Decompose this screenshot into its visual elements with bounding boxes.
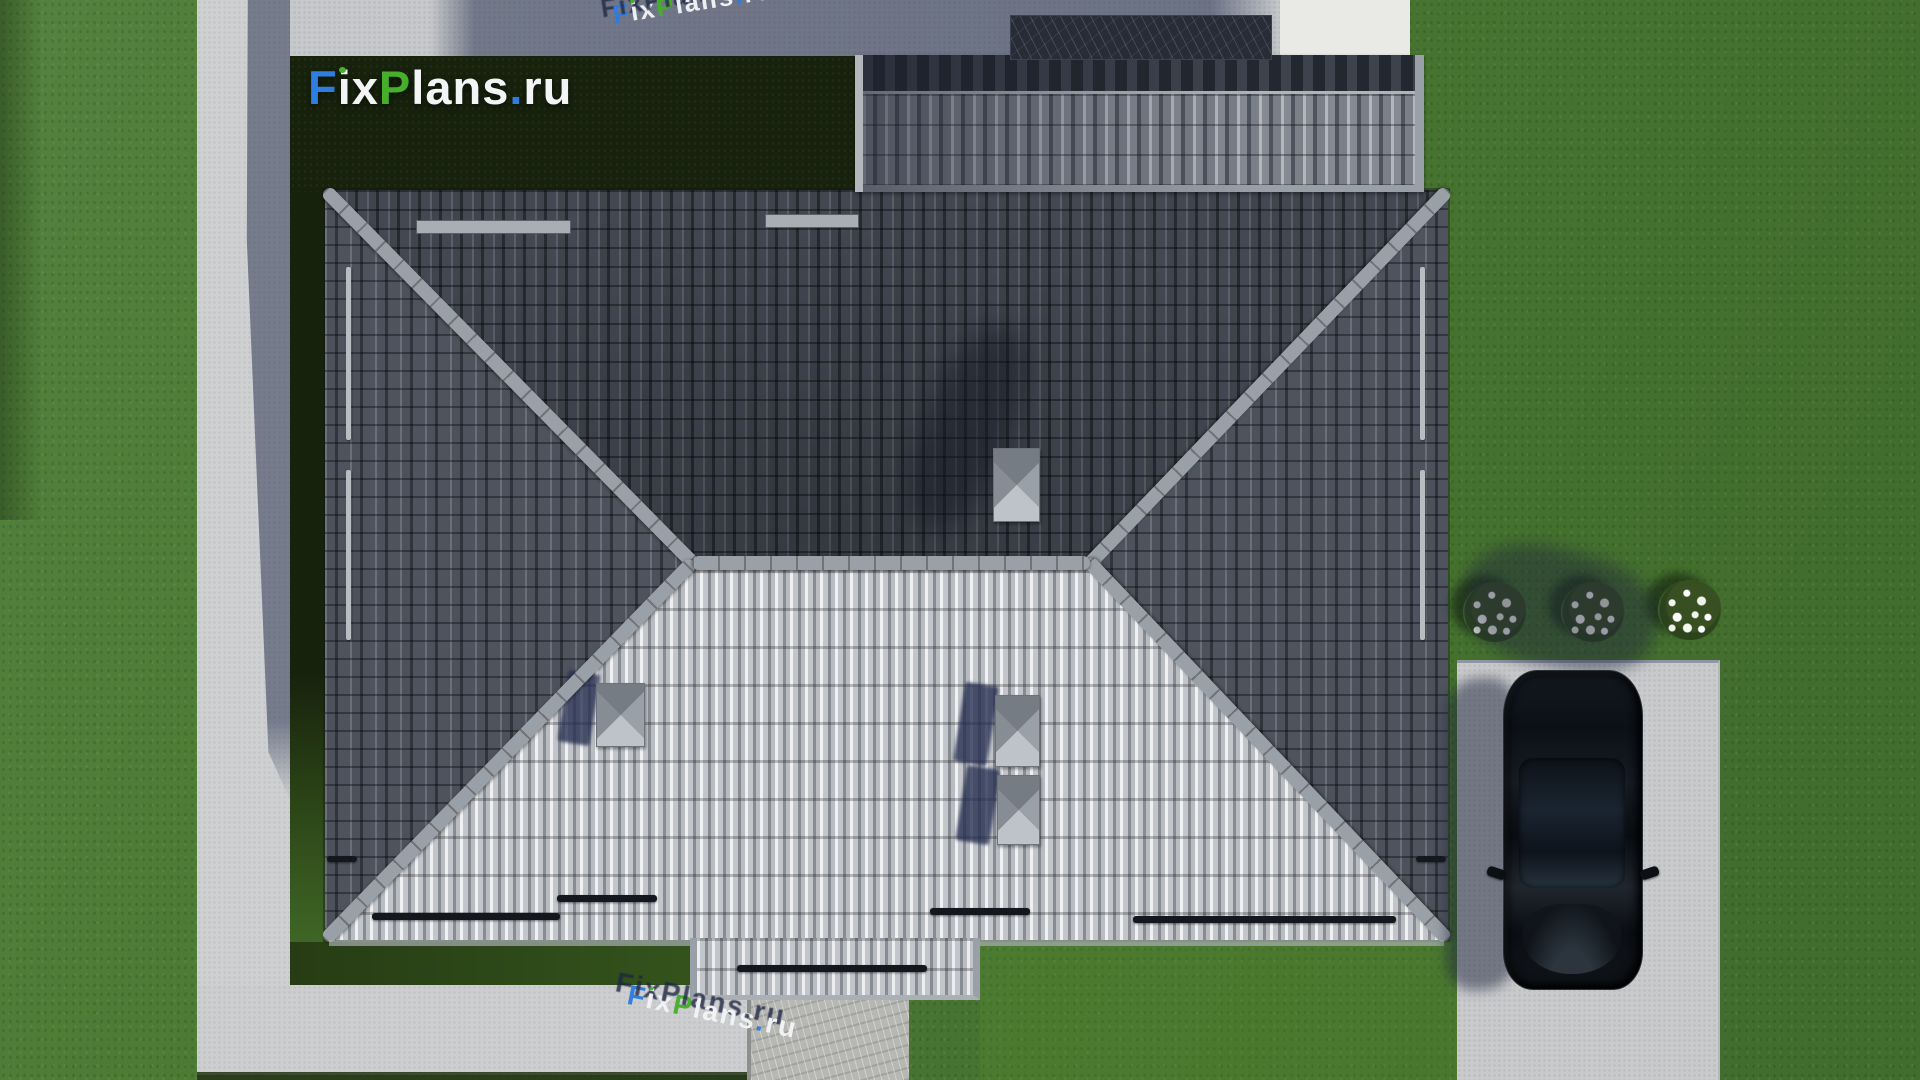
gutter-rail-right-1 — [1420, 267, 1425, 440]
roof-inset-strip-2 — [765, 214, 859, 228]
garage-roof-shading — [863, 55, 1415, 192]
logo-letter-i: i — [338, 64, 352, 111]
roof-vent-north — [993, 448, 1040, 522]
roof-vent-south-center-upper — [995, 695, 1040, 767]
porch-snow-guard-bar — [737, 965, 927, 972]
roof-ridge-cap — [692, 556, 1090, 570]
snow-guard-bar-4 — [1133, 916, 1396, 923]
car-roof-glass — [1519, 758, 1625, 888]
garage-roof-section — [855, 55, 1424, 192]
gutter-rail-left-1 — [346, 267, 351, 440]
sunlit-lawn-patch — [980, 940, 1458, 1080]
snow-guard-bar-2 — [557, 895, 657, 902]
snow-guard-bar-west — [327, 856, 357, 862]
car-hood — [1523, 904, 1621, 974]
aerial-house-render: FixPlans.ru FixPlans.ru FixPlans.ru — [0, 0, 1920, 1080]
top-walkway-sunlit-part — [1280, 0, 1410, 60]
wm-letter: ru — [763, 1007, 801, 1044]
logo-letter-x: x — [352, 61, 379, 114]
slate-flat-roof-patch — [1010, 15, 1272, 60]
fixplans-logo: FixPlans.ru — [308, 64, 572, 111]
logo-letters-lans: lans — [411, 61, 509, 114]
logo-letters-ru: ru — [523, 61, 572, 114]
gutter-rail-left-2 — [346, 470, 351, 640]
porch-roof-extension — [690, 938, 980, 1000]
lawn-edge-shade — [0, 0, 42, 520]
shaded-lawn-strip-left-of-house — [290, 192, 327, 942]
gutter-rail-right-2 — [1420, 470, 1425, 640]
snow-guard-bar-3 — [930, 908, 1030, 915]
logo-letter-f: F — [308, 61, 338, 114]
flower-bush — [1658, 580, 1722, 640]
snow-guard-bar-1 — [372, 913, 560, 920]
roof-inset-strip-1 — [416, 220, 571, 234]
roof-vent-south-center-lower — [997, 775, 1040, 845]
black-car-top-view — [1503, 670, 1643, 990]
house-shadow-on-sidewalk — [242, 0, 290, 800]
grass-strip-below-path — [197, 1072, 797, 1080]
logo-letter-p: P — [379, 61, 411, 114]
main-hip-roof — [325, 190, 1448, 940]
left-sidewalk — [197, 0, 290, 985]
roof-vent-south-left — [596, 683, 645, 747]
logo-dot: . — [509, 61, 523, 114]
snow-guard-bar-east — [1416, 856, 1446, 862]
